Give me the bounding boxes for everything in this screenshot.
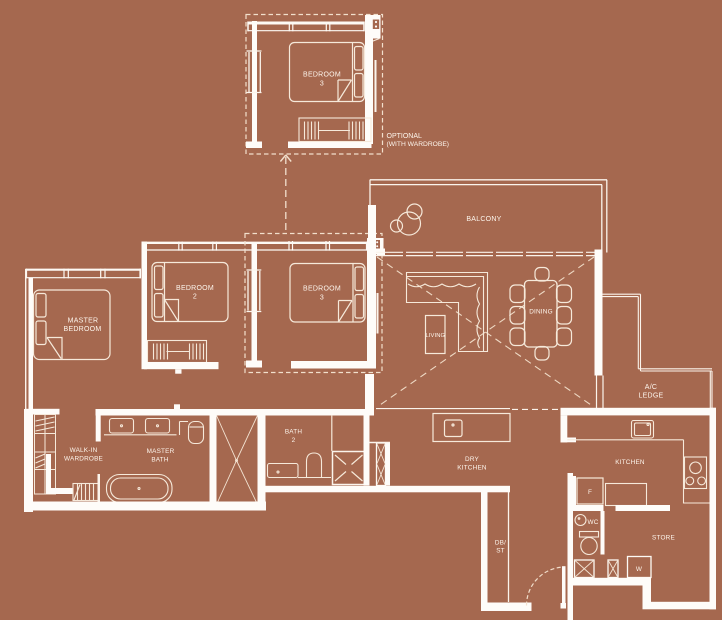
svg-text:STORE: STORE xyxy=(652,535,675,542)
svg-text:LIVING: LIVING xyxy=(425,333,445,339)
svg-text:LEDGE: LEDGE xyxy=(639,393,664,400)
svg-text:F: F xyxy=(588,489,592,496)
svg-text:BATH: BATH xyxy=(285,429,303,436)
svg-text:BALCONY: BALCONY xyxy=(466,216,501,223)
svg-text:MASTER: MASTER xyxy=(68,318,99,325)
svg-text:KITCHEN: KITCHEN xyxy=(457,465,487,472)
svg-text:DINING: DINING xyxy=(529,309,553,316)
svg-text:W: W xyxy=(636,566,643,573)
svg-text:DRY: DRY xyxy=(465,456,480,463)
svg-text:BEDROOM: BEDROOM xyxy=(303,286,341,293)
svg-text:A/C: A/C xyxy=(645,384,657,391)
svg-text:OPTIONAL: OPTIONAL xyxy=(387,133,423,140)
svg-text:(WITH WARDROBE): (WITH WARDROBE) xyxy=(387,141,450,148)
svg-text:WALK-IN: WALK-IN xyxy=(70,447,98,454)
svg-text:BEDROOM: BEDROOM xyxy=(303,72,341,79)
svg-text:BATH: BATH xyxy=(151,457,169,464)
svg-text:BEDROOM: BEDROOM xyxy=(176,285,214,292)
svg-text:ST: ST xyxy=(496,548,505,555)
svg-text:BEDROOM: BEDROOM xyxy=(64,326,102,333)
svg-text:MASTER: MASTER xyxy=(147,448,175,455)
svg-text:3: 3 xyxy=(320,81,324,88)
svg-text:KITCHEN: KITCHEN xyxy=(615,459,645,466)
svg-text:WARDROBE: WARDROBE xyxy=(64,456,103,463)
svg-text:3: 3 xyxy=(320,295,324,302)
svg-text:2: 2 xyxy=(292,437,296,444)
svg-text:WC: WC xyxy=(588,519,599,526)
svg-text:2: 2 xyxy=(193,294,197,301)
svg-text:DB/: DB/ xyxy=(495,540,506,547)
